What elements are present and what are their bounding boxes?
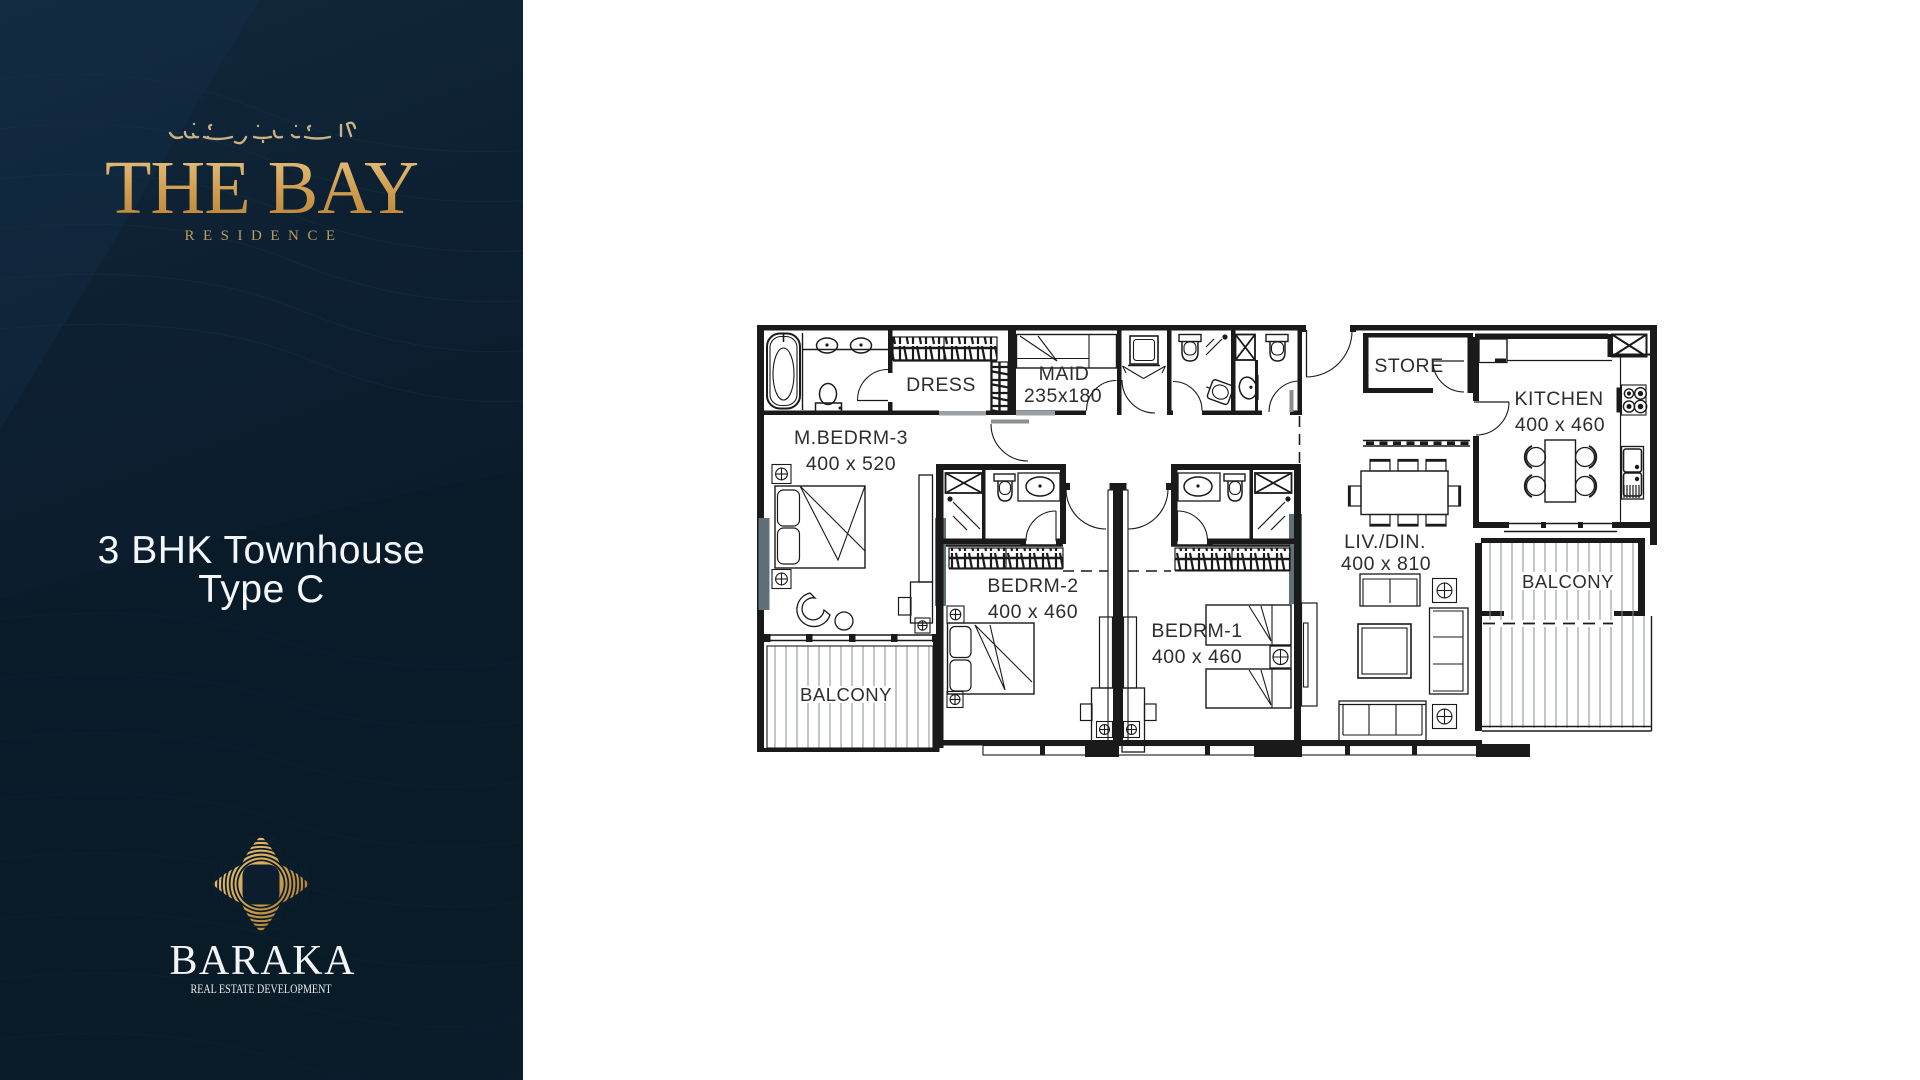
- svg-text:400 x 520: 400 x 520: [806, 453, 896, 475]
- svg-text:400 x 460: 400 x 460: [1152, 646, 1242, 668]
- svg-text:BALCONY: BALCONY: [1522, 571, 1614, 592]
- svg-text:400 x 460: 400 x 460: [1515, 414, 1605, 436]
- svg-text:400 x 460: 400 x 460: [988, 601, 1078, 623]
- svg-text:400 x 810: 400 x 810: [1341, 553, 1431, 575]
- svg-text:BEDRM-1: BEDRM-1: [1151, 620, 1242, 642]
- svg-text:BALCONY: BALCONY: [800, 684, 892, 705]
- svg-text:LIV./DIN.: LIV./DIN.: [1344, 531, 1426, 553]
- svg-text:BEDRM-2: BEDRM-2: [987, 575, 1078, 597]
- svg-text:MAID: MAID: [1039, 363, 1090, 385]
- svg-text:DRESS: DRESS: [906, 374, 976, 396]
- svg-text:M.BEDRM-3: M.BEDRM-3: [794, 427, 908, 449]
- svg-text:KITCHEN: KITCHEN: [1514, 388, 1603, 410]
